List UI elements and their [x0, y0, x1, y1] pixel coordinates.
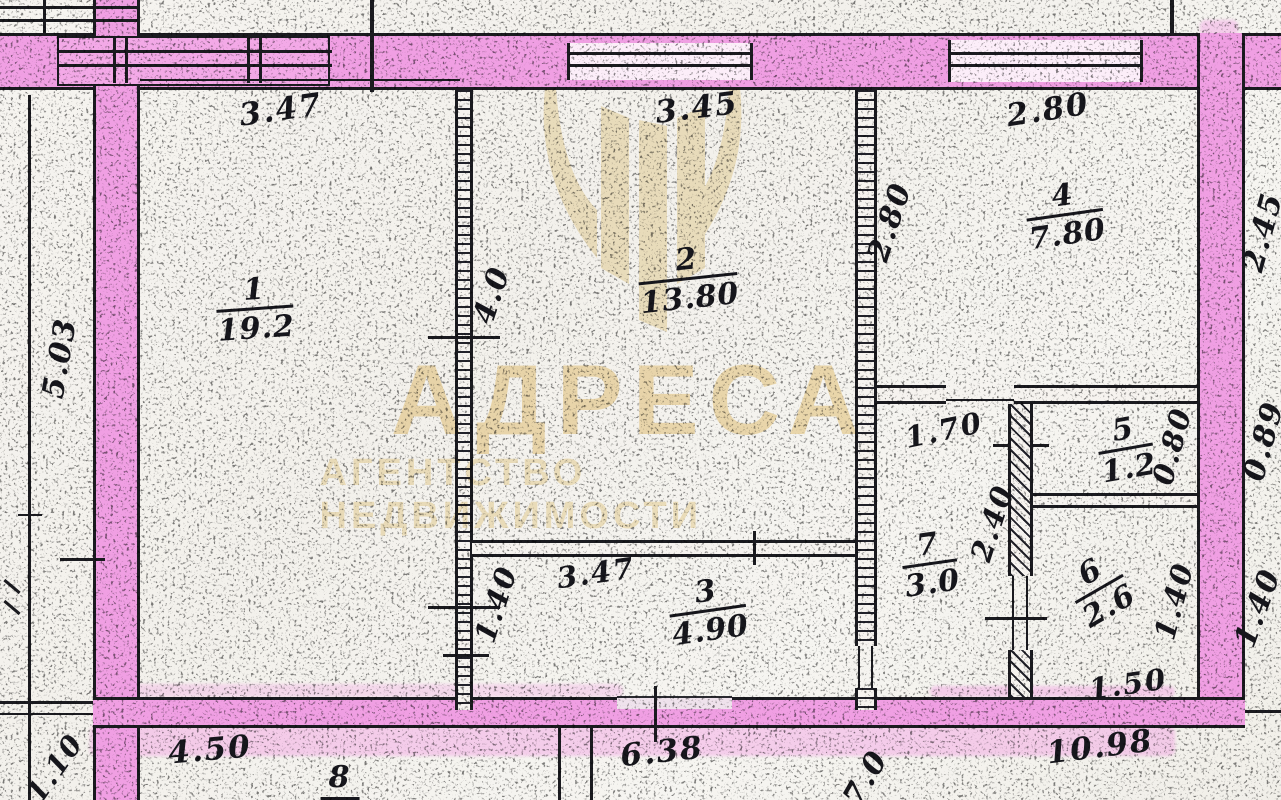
window-room2: [567, 43, 753, 80]
entrance-door-opening: [617, 696, 732, 709]
wall-room7-room6: [1008, 650, 1033, 697]
wall-room1-room2: [455, 90, 473, 710]
dimension-label: 4.50: [167, 728, 253, 771]
site-border-tick: [18, 514, 42, 516]
top-wall-inner-line: [140, 79, 460, 81]
room-label-6: 62.6: [1059, 546, 1142, 634]
bottom-left-line: [0, 713, 93, 715]
dimension-label: 3.45: [653, 85, 740, 131]
dimension-label: 6.38: [619, 730, 706, 775]
floor-plan-scan: АДРЕСА АГЕНТСТВО НЕДВИЖИМОСТИ 3.473.452.…: [0, 0, 1281, 800]
wall-tick: [443, 654, 489, 657]
wall-stub-line: [1170, 0, 1174, 33]
window-room4: [948, 40, 1143, 82]
porch-line: [558, 728, 561, 800]
door-jamb-line: [1026, 576, 1028, 650]
wall-room2-room4: [855, 90, 877, 646]
wall-tick: [428, 336, 500, 339]
highlight-halo: [93, 684, 623, 697]
porch-line: [590, 728, 593, 800]
dimension-label: 8: [321, 760, 360, 800]
door-jamb-line: [858, 646, 860, 688]
wall-stub-line: [0, 6, 140, 9]
bottom-left-line: [0, 701, 93, 704]
room-label-1: 119.2: [214, 273, 296, 348]
wall-room2-room4: [855, 688, 877, 710]
door-jamb-line: [871, 646, 873, 688]
outer-wall-left: [93, 0, 140, 800]
wall-room5-room6: [1033, 493, 1197, 508]
dimension-label: 5.03: [36, 315, 85, 401]
site-border-line: [28, 95, 31, 800]
wall-stub-line: [43, 0, 46, 33]
door-jamb-line: [1012, 576, 1014, 650]
wall-tick: [753, 531, 756, 565]
edge-mark: [3, 579, 20, 594]
room-label-4: 47.80: [1022, 176, 1108, 256]
dimension-label: 1.40: [468, 561, 525, 646]
dimension-label: 1.40: [1147, 559, 1200, 644]
room-area: 19.2: [217, 307, 296, 347]
dimension-label: 1.70: [902, 405, 986, 455]
room-area: 3.0: [903, 561, 963, 603]
door-threshold-line: [946, 399, 1014, 401]
dimension-label: 4.0: [466, 262, 517, 328]
room-label-3: 34.90: [665, 572, 751, 652]
dimension-label: 2.80: [1004, 86, 1092, 135]
edge-mark: [3, 600, 20, 615]
room-label-2: 213.80: [635, 240, 741, 320]
wall-room2-room3: [472, 540, 855, 557]
door-opening: [946, 383, 1014, 406]
room-number: 1: [214, 273, 293, 313]
room-label-7: 73.0: [898, 527, 962, 604]
wall-room4-room5: [877, 385, 1197, 404]
room-label-5: 51.2: [1093, 411, 1159, 489]
dimension-label: 3.47: [555, 551, 638, 596]
dimension-label: 3.47: [237, 86, 325, 133]
bottom-wall-extension-line: [1245, 710, 1281, 713]
wall-stub-line: [0, 19, 140, 22]
left-wall-tick: [60, 558, 105, 561]
wall-tick: [985, 617, 1047, 620]
